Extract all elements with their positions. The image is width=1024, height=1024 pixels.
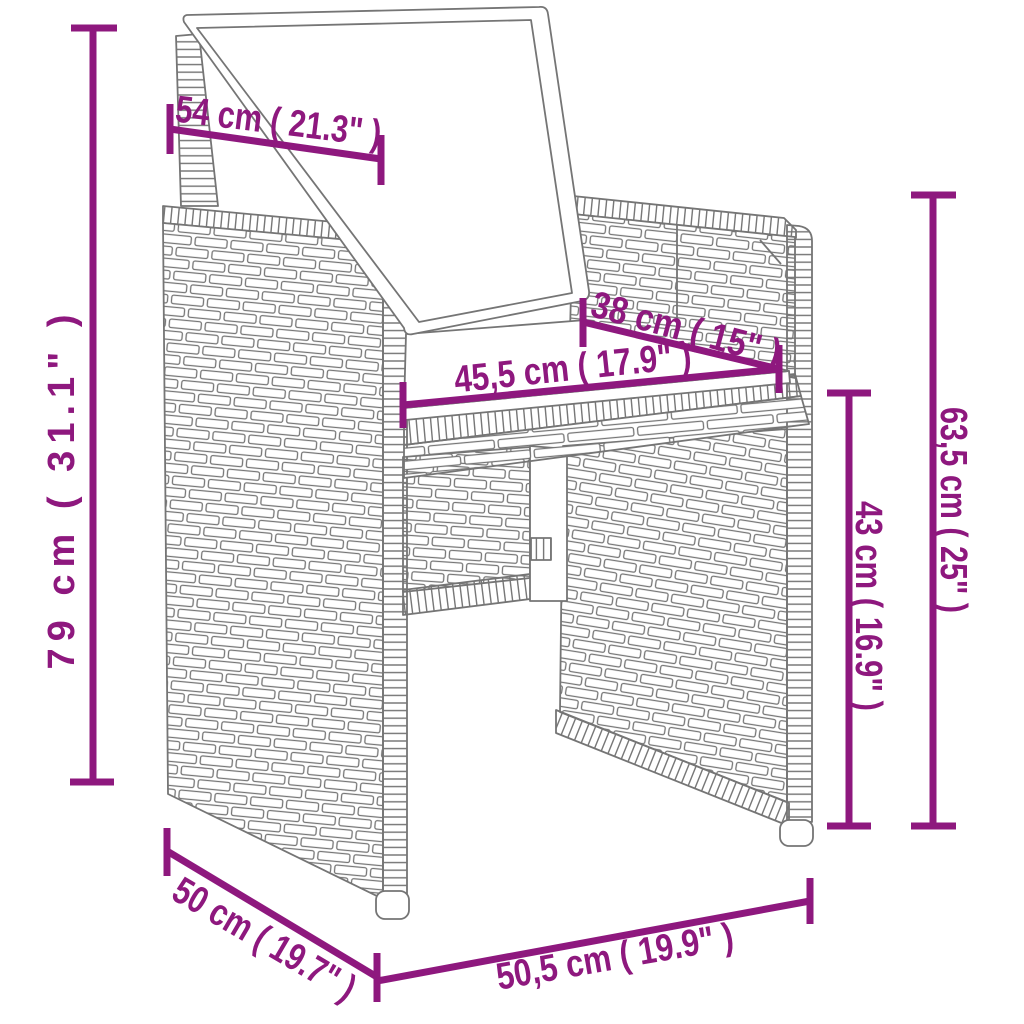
diagram-canvas: 54 cm ( 21.3" ) 79 cm ( 31.1" ) 38 cm ( … — [0, 0, 1024, 1024]
left-panel-front-column — [383, 230, 407, 915]
dim-base-depth-label: 50 cm ( 19.7" ) — [165, 870, 363, 1010]
dim-total-height-label: 79 cm ( 31.1" ) — [41, 315, 83, 670]
back-left-leg-wrap — [531, 538, 551, 560]
front-right-foot — [780, 820, 813, 846]
back-left-leg — [530, 446, 567, 601]
dimension-diagram: 54 cm ( 21.3" ) 79 cm ( 31.1" ) 38 cm ( … — [0, 0, 1024, 1024]
dim-armrest-panel-height-label: 63,5 cm ( 25" ) — [932, 407, 974, 613]
dim-base-width-label: 50,5 cm ( 19.9" ) — [493, 916, 737, 999]
left-panel-face — [163, 223, 383, 899]
left-side-panel — [163, 206, 409, 919]
front-left-foot — [376, 891, 409, 919]
front-right-leg — [787, 225, 812, 822]
dim-seat-height-label: 43 cm ( 16.9" ) — [847, 501, 889, 711]
